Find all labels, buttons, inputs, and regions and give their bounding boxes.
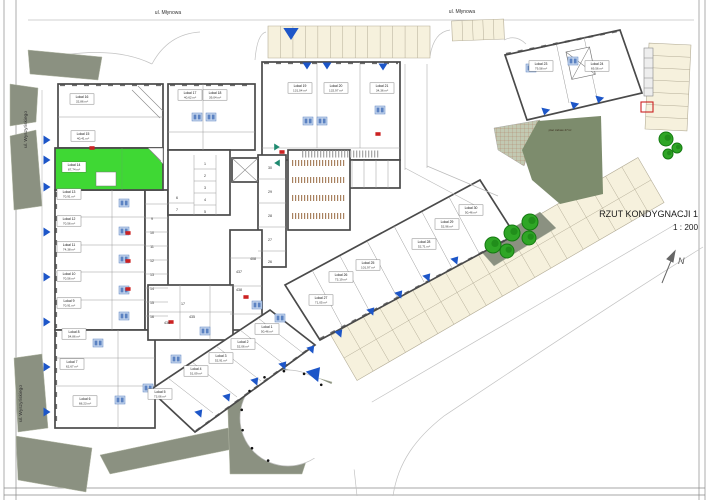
svg-text:51,09 m²: 51,09 m² [190, 371, 202, 375]
svg-text:Lokal 7: Lokal 7 [67, 360, 78, 364]
unit-label: Lokal 1174,38 m² [57, 242, 81, 252]
storage-cell-number: 5 [204, 210, 206, 214]
unit-label: Lokal 2952,96 m² [435, 219, 459, 229]
unit-label: Lokal 252,06 m² [231, 339, 255, 349]
svg-text:Lokal 11: Lokal 11 [63, 243, 76, 247]
svg-text:Lokal 29: Lokal 29 [441, 220, 454, 224]
storage-cell-number: 9 [151, 217, 153, 221]
building-block [55, 190, 145, 330]
svg-text:50,46 m²: 50,46 m² [261, 329, 273, 333]
svg-text:Lokal 4: Lokal 4 [191, 367, 202, 371]
playground: plac zabaw 47m² [494, 116, 603, 204]
tree-icon [522, 231, 536, 245]
building-block [148, 285, 233, 340]
unit-label: Lokal 1070,56 m² [57, 271, 81, 281]
svg-text:70,91 m²: 70,91 m² [63, 303, 75, 307]
bollard-dot [303, 373, 306, 376]
storage-cell-number: 6 [176, 196, 178, 200]
wc-fixture-icon [275, 314, 285, 322]
storage-cell-number: 437 [236, 270, 242, 274]
svg-text:62,67 m²: 62,67 m² [66, 364, 78, 368]
svg-text:70,56 m²: 70,56 m² [63, 221, 75, 225]
door-marker [279, 150, 284, 154]
unit-label: Lokal 352,91 m² [209, 353, 233, 363]
bollard-dot [248, 390, 251, 393]
door-marker [375, 132, 380, 136]
unit-label: Lokal 19131,04 m² [288, 83, 312, 93]
wc-fixture-icon [317, 117, 327, 125]
tree-icon [659, 132, 673, 146]
svg-text:Lokal 20: Lokal 20 [330, 84, 343, 88]
unit-label: Lokal 25101,97 m² [356, 260, 380, 270]
svg-text:34,36 m²: 34,36 m² [376, 88, 388, 92]
svg-text:69,56 m²: 69,56 m² [591, 66, 603, 70]
svg-text:52,96 m²: 52,96 m² [441, 224, 453, 228]
drawing-title: RZUT KONDYGNACJI 1 [599, 209, 698, 219]
unit-label: Lokal 150,46 m² [255, 324, 279, 334]
svg-text:Lokal 30: Lokal 30 [465, 206, 478, 210]
storage-cell-number: 1 [204, 162, 206, 166]
grass-area [28, 50, 102, 80]
svg-text:54,86 m²: 54,86 m² [68, 334, 80, 338]
svg-text:Lokal 27: Lokal 27 [315, 296, 328, 300]
tree-icon [522, 214, 538, 230]
street-label-wyszynskiego-upper: ul. Wyszyńskiego [23, 111, 29, 148]
grass-area [100, 428, 238, 474]
drawing-scale: 1 : 200 [673, 223, 698, 232]
svg-text:Lokal 26: Lokal 26 [335, 273, 348, 277]
tree-icon [672, 143, 682, 153]
unit-label: Lokal 2134,36 m² [370, 83, 394, 93]
svg-text:40,41 m²: 40,41 m² [77, 136, 89, 140]
storage-cell-number: 28 [268, 214, 272, 218]
unit-label: Lokal 2771,05 m² [309, 295, 333, 305]
street-label-wyszynskiego-lower: ul. Wyszyńskiego [18, 385, 24, 422]
wc-fixture-icon [119, 199, 129, 207]
svg-text:52,91 m²: 52,91 m² [215, 358, 227, 362]
door-marker [89, 146, 94, 150]
street-label-mlynowa-right: ul. Młynowa [449, 9, 476, 15]
svg-text:39,04 m²: 39,04 m² [209, 95, 221, 99]
unit-label: Lokal 1540,41 m² [71, 131, 95, 141]
svg-text:Lokal 16: Lokal 16 [76, 95, 89, 99]
svg-text:68,23 m²: 68,23 m² [79, 401, 91, 405]
unit-label: Lokal 20132,97 m² [324, 83, 348, 93]
bollard-dot [283, 370, 286, 373]
svg-text:Lokal 10: Lokal 10 [63, 272, 76, 276]
svg-text:74,38 m²: 74,38 m² [63, 247, 75, 251]
svg-text:Lokal 19: Lokal 19 [294, 84, 307, 88]
storage-cell-number: 12 [150, 259, 154, 263]
floor-plan-sheet: plac zabaw 47m² [0, 0, 707, 500]
storage-cell-number: 13 [150, 273, 154, 277]
unit-label: Lokal 2673,19 m² [329, 272, 353, 282]
unit-label: Lokal 1370,91 m² [57, 189, 81, 199]
svg-text:73,06 m²: 73,06 m² [154, 394, 166, 398]
svg-text:Lokal 23: Lokal 23 [535, 62, 548, 66]
storage-cell-number: 14 [150, 287, 154, 291]
svg-text:Lokal 17: Lokal 17 [184, 91, 197, 95]
unit-label: Lokal 762,67 m² [60, 359, 84, 369]
svg-text:40,62 m²: 40,62 m² [184, 95, 196, 99]
svg-text:79,58 m²: 79,58 m² [535, 66, 547, 70]
storage-cell-number: 3 [204, 186, 206, 190]
storage-cell-number: 15 [150, 301, 154, 305]
svg-text:Lokal 1: Lokal 1 [262, 325, 273, 329]
trellis [644, 48, 653, 96]
svg-text:Lokal 24: Lokal 24 [591, 62, 604, 66]
playground-label: plac zabaw 47m² [549, 128, 572, 132]
wc-fixture-icon [192, 113, 202, 121]
bollard-dot [263, 376, 266, 379]
entrance-marker-icon [44, 273, 51, 282]
wc-fixture-icon [375, 106, 385, 114]
svg-text:Lokal 21: Lokal 21 [376, 84, 389, 88]
wc-fixture-icon [93, 339, 103, 347]
building-block [55, 330, 155, 428]
storage-cell-number: 27 [268, 238, 272, 242]
svg-text:Lokal 8: Lokal 8 [69, 330, 80, 334]
bollard-dot [320, 383, 323, 386]
svg-text:131,04 m²: 131,04 m² [293, 88, 307, 92]
unit-label: Lokal 970,91 m² [57, 298, 81, 308]
door-marker [243, 295, 248, 299]
svg-text:52,06 m²: 52,06 m² [237, 344, 249, 348]
unit-label: Lokal 451,09 m² [184, 366, 208, 376]
storage-cell-number: 16 [150, 315, 154, 319]
wc-fixture-icon [200, 327, 210, 335]
svg-text:70,56 m²: 70,56 m² [63, 276, 75, 280]
storage-cell-number: 2 [204, 174, 206, 178]
svg-text:32,86 m²: 32,86 m² [76, 99, 88, 103]
wc-fixture-icon [119, 312, 129, 320]
door-marker [125, 287, 130, 291]
svg-text:52,71 m²: 52,71 m² [418, 244, 430, 248]
svg-text:Lokal 9: Lokal 9 [64, 299, 75, 303]
highlighted-unit-bathroom [96, 172, 116, 186]
wc-fixture-icon [568, 57, 578, 65]
unit-label: Lokal 668,23 m² [73, 396, 97, 406]
svg-text:101,97 m²: 101,97 m² [361, 265, 375, 269]
svg-text:50,46 m²: 50,46 m² [465, 210, 477, 214]
storage-cell-number: 26 [268, 260, 272, 264]
svg-text:70,91 m²: 70,91 m² [63, 194, 75, 198]
storage-cell-number: 29 [268, 190, 272, 194]
entrance-marker-icon [44, 318, 51, 327]
storage-cell-number: 436 [164, 321, 170, 325]
entrance-marker-icon [44, 363, 51, 372]
storage-cell-number: 408 [250, 257, 256, 261]
entrance-marker-icon [44, 156, 51, 165]
svg-text:87,74 m²: 87,74 m² [68, 167, 80, 171]
unit-label: Lokal 1740,62 m² [178, 90, 202, 100]
storage-cell-number: 7 [176, 208, 178, 212]
bollard-dot [241, 429, 244, 432]
storage-cell-number: 435 [189, 315, 195, 319]
wc-fixture-icon [171, 355, 181, 363]
svg-text:132,97 m²: 132,97 m² [329, 88, 343, 92]
svg-text:73,19 m²: 73,19 m² [335, 277, 347, 281]
svg-text:Lokal 25: Lokal 25 [362, 261, 375, 265]
north-label: N [678, 256, 685, 266]
street-label-mlynowa-left: ul. Młynowa [155, 10, 182, 16]
svg-text:Lokal 15: Lokal 15 [77, 132, 90, 136]
door-marker [125, 259, 130, 263]
wc-fixture-icon [115, 396, 125, 404]
unit-label: Lokal 2852,71 m² [412, 239, 436, 249]
unit-label: Lokal 1839,04 m² [203, 90, 227, 100]
svg-text:Lokal 6: Lokal 6 [80, 397, 91, 401]
wc-fixture-icon [206, 113, 216, 121]
svg-text:Lokal 2: Lokal 2 [238, 340, 249, 344]
tree-icon [485, 237, 501, 253]
unit-label: Lokal 1632,86 m² [70, 94, 94, 104]
bollard-dot [240, 409, 243, 412]
unit-label: Lokal 2379,58 m² [529, 61, 553, 71]
storage-cell-number: 30 [268, 166, 272, 170]
storage-cell-number: 17 [181, 302, 185, 306]
north-arrow-icon: N [662, 251, 685, 283]
svg-text:Lokal 18: Lokal 18 [209, 91, 222, 95]
unit-label: Lokal 2469,56 m² [585, 61, 609, 71]
unit-label: Lokal 1487,74 m² [62, 162, 86, 172]
svg-text:Lokal 5: Lokal 5 [155, 390, 166, 394]
entrance-marker-icon [44, 183, 51, 192]
svg-text:Lokal 14: Lokal 14 [68, 163, 81, 167]
parking-strip [452, 19, 505, 41]
entrance-marker-icon [44, 228, 51, 237]
svg-text:71,05 m²: 71,05 m² [315, 300, 327, 304]
wc-fixture-icon [252, 301, 262, 309]
door-marker [125, 231, 130, 235]
storage-cell-number: 4 [204, 198, 206, 202]
grass-area [16, 436, 92, 492]
bollard-dot [267, 459, 270, 462]
storage-cell-number: 10 [150, 231, 154, 235]
svg-text:Lokal 13: Lokal 13 [63, 190, 76, 194]
unit-label: Lokal 3050,46 m² [459, 205, 483, 215]
site-plan-drawing: plac zabaw 47m² [0, 0, 707, 500]
unit-label: Lokal 854,86 m² [62, 329, 86, 339]
entrance-marker-icon [44, 136, 51, 145]
bollard-dot [251, 447, 254, 450]
tree-icon [663, 149, 673, 159]
wc-fixture-icon [303, 117, 313, 125]
tree-icon [500, 244, 514, 258]
building-block [230, 230, 262, 330]
unit-label: Lokal 573,06 m² [148, 389, 172, 399]
tree-icon [504, 225, 520, 241]
svg-text:Lokal 28: Lokal 28 [418, 240, 431, 244]
unit-label: Lokal 1270,56 m² [57, 216, 81, 226]
svg-text:Lokal 3: Lokal 3 [216, 354, 227, 358]
storage-cell-number: 11 [150, 245, 154, 249]
svg-text:Lokal 12: Lokal 12 [63, 217, 76, 221]
storage-cell-number: 438 [236, 288, 242, 292]
